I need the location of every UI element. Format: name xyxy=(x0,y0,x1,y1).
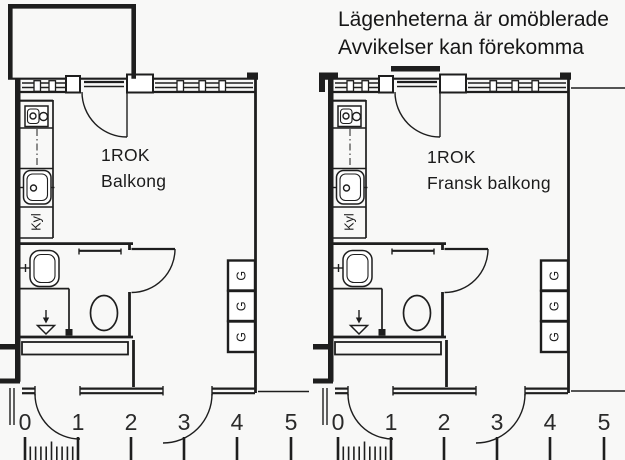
wardrobe-label-left-1: G xyxy=(235,271,249,281)
scale-ruler-left xyxy=(24,437,293,460)
ruler-left-label-1: 1 xyxy=(72,409,85,435)
ruler-right-label-2: 2 xyxy=(438,409,451,435)
fridge-label-right: Kyl xyxy=(343,213,357,230)
ruler-right-label-5: 5 xyxy=(598,409,611,435)
floorplan-drawing: Lägenheterna är omöblerade Avvikelser ka… xyxy=(0,0,625,460)
wardrobe-label-left-2: G xyxy=(235,301,249,311)
ruler-right-label-1: 1 xyxy=(385,409,398,435)
corner-wall-stub xyxy=(319,73,338,79)
ruler-left-label-3: 3 xyxy=(178,409,191,435)
wardrobe-label-left-3: G xyxy=(235,332,249,342)
ruler-right-label-3: 3 xyxy=(491,409,504,435)
wardrobe-label-right-3: G xyxy=(548,332,562,342)
ruler-right-label-4: 4 xyxy=(544,409,557,435)
french-balcony-bar xyxy=(391,66,440,72)
floorplan-page: Lägenheterna är omöblerade Avvikelser ka… xyxy=(0,0,625,460)
wardrobe-label-right-1: G xyxy=(548,271,562,281)
header-line-2: Avvikelser kan förekomma xyxy=(338,36,584,59)
balcony-outline xyxy=(10,6,133,78)
ruler-left-label-5: 5 xyxy=(285,409,298,435)
ruler-left-label-2: 2 xyxy=(125,409,138,435)
ruler-left-label-0: 0 xyxy=(19,409,32,435)
scale-ruler-right xyxy=(337,437,606,460)
ruler-left-label-4: 4 xyxy=(231,409,244,435)
wardrobe-label-right-2: G xyxy=(548,301,562,311)
plan-left-title: 1ROK xyxy=(101,145,150,165)
ruler-right-label-0: 0 xyxy=(332,409,345,435)
plan-right-subtitle: Fransk balkong xyxy=(427,173,551,193)
fridge-label-left: Kyl xyxy=(30,213,44,230)
plan-right-title: 1ROK xyxy=(427,147,476,167)
plan-left-subtitle: Balkong xyxy=(101,171,166,191)
floorplan-left-geometry xyxy=(0,73,258,444)
floorplan-right-geometry xyxy=(313,73,571,444)
header-line-1: Lägenheterna är omöblerade xyxy=(338,8,609,31)
